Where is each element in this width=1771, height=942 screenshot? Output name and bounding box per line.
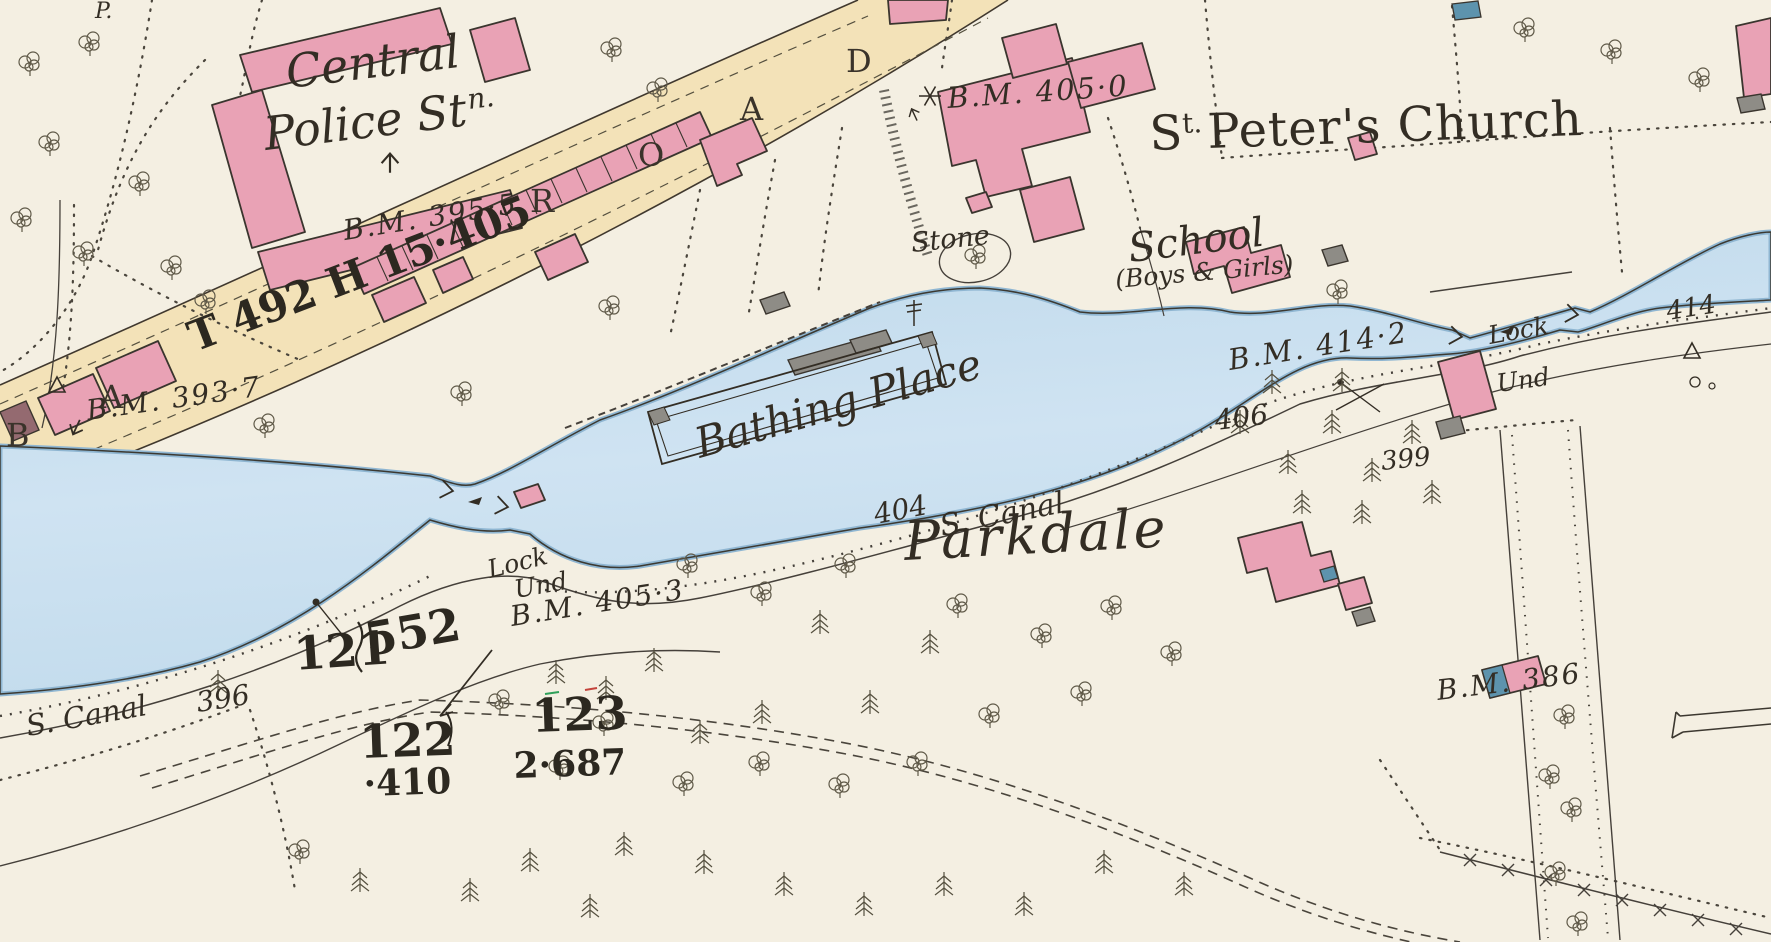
conifer-icon [775, 872, 793, 896]
label-st-peters-rest: Peter's Church [1206, 91, 1583, 160]
outbuilding [1322, 245, 1348, 266]
building-far-right [1736, 18, 1771, 98]
building-top-edge [888, 0, 948, 24]
label-canal-left: S. Canal [23, 688, 149, 743]
road-letter-a2: A [739, 90, 764, 128]
tree-icon [289, 840, 309, 864]
tree-icon [1101, 596, 1121, 620]
tree-icon [749, 752, 769, 776]
parcel-area-123: 2·687 [513, 741, 627, 787]
tree-icon [1561, 798, 1581, 822]
tree-icon [1567, 912, 1587, 936]
label-und-right: Und [1495, 362, 1552, 398]
fence-x-icon [1730, 923, 1742, 935]
triangulation-icon [1684, 343, 1700, 358]
tree-icon [1161, 642, 1181, 666]
station-star-icon [919, 87, 941, 106]
tree-icon [161, 256, 181, 280]
road-letter-o: O [638, 136, 664, 174]
conifer-icon [753, 700, 771, 724]
fence-x-icon [1654, 904, 1666, 916]
conifer-icon [1423, 480, 1441, 504]
conifer-icon [547, 660, 565, 684]
sluice-trough [1672, 708, 1771, 738]
spot-height-396: 396 [194, 678, 252, 719]
building-right-mid [1438, 351, 1496, 420]
label-parkdale: Parkdale [901, 496, 1170, 573]
building-church-wing [1020, 177, 1084, 242]
parcel-arrow [440, 650, 492, 716]
tree-icon [599, 296, 619, 320]
conifer-icon [1323, 410, 1341, 434]
building-church-porch [966, 192, 992, 213]
survey-knob [313, 599, 320, 606]
tree-icon [79, 32, 99, 56]
parcel-area-122: ·410 [363, 760, 452, 805]
slate-building [1452, 1, 1481, 20]
conifer-icon [1095, 850, 1113, 874]
conifer-icon [615, 832, 633, 856]
tree-icon [601, 38, 621, 62]
fence-line [1440, 852, 1771, 934]
ordnance-survey-map[interactable]: P. Central Police St n. B.M. 395·5 T 492… [0, 0, 1771, 942]
tree-icon [1071, 682, 1091, 706]
conifer-icon [581, 894, 599, 918]
tree-icon [73, 242, 93, 266]
conifer-icon [1333, 368, 1351, 392]
tree-icon [129, 172, 149, 196]
tree-icon [1554, 705, 1574, 729]
conifer-icon [351, 868, 369, 892]
parcel-number-123: 123 [530, 686, 628, 743]
tree-icon [1601, 40, 1621, 64]
outbuilding [1352, 607, 1375, 626]
tree-icon [835, 554, 855, 578]
tree-icon [1031, 624, 1051, 648]
outbuilding [1737, 94, 1765, 113]
tree-icon [907, 752, 927, 776]
conifer-icon [1353, 500, 1371, 524]
spot-height-406: 406 [1212, 398, 1270, 437]
label-lock-right: Lock [1485, 311, 1551, 350]
outbuilding [760, 292, 790, 314]
label-st-peters-initial: S [1148, 105, 1183, 162]
conifer-icon [1015, 892, 1033, 916]
park-paths [140, 700, 1460, 942]
tree-icon [673, 772, 693, 796]
outbuilding [1436, 416, 1465, 439]
conifer-icon [861, 690, 879, 714]
building-parkdale-wing [1338, 577, 1372, 610]
spot-height-414: 414 [1663, 290, 1718, 328]
conifer-icon [921, 630, 939, 654]
tree-icon [1539, 765, 1559, 789]
conifer-icon [461, 878, 479, 902]
fence-x-icon [1616, 894, 1628, 906]
conifer-icon [1175, 872, 1193, 896]
tree-icon [1514, 18, 1534, 42]
conifer-icon [521, 848, 539, 872]
tree-icon [19, 52, 39, 76]
tree-ic on [1327, 280, 1347, 304]
tree-icon [39, 132, 59, 156]
tree-icon [947, 594, 967, 618]
tree-icon [829, 774, 849, 798]
benchmark-405-0: B.M. 405·0 [945, 68, 1130, 115]
spot-height-399: 399 [1380, 442, 1433, 477]
tree-icon [979, 704, 999, 728]
bench-mark-icon [907, 107, 923, 123]
building-police-east-wing [470, 18, 530, 82]
tree-icon [1689, 68, 1709, 92]
label-st-peters-superscript: t. [1182, 106, 1203, 140]
label-police-station-superscript: n. [465, 80, 496, 116]
building-parkdale-house [1238, 522, 1340, 602]
road-letter-b: B [6, 416, 30, 454]
conifer-icon [1363, 458, 1381, 482]
conifer-icon [855, 892, 873, 916]
road-letter-r: R [530, 182, 555, 220]
parcel-area-121: 552 [361, 597, 465, 667]
tree-icon [254, 414, 274, 438]
conifer-icon [1293, 490, 1311, 514]
conifer-icon [1403, 420, 1421, 444]
label-p-corner: P. [94, 0, 112, 24]
bench-mark-icon [382, 154, 399, 173]
pump-icon [1709, 383, 1715, 389]
road-letter-d: D [846, 42, 872, 80]
tree-icon [451, 382, 471, 406]
tree-icon [11, 208, 31, 232]
conifer-icon [695, 850, 713, 874]
conifer-icon [935, 872, 953, 896]
map-canvas: P. Central Police St n. B.M. 395·5 T 492… [0, 0, 1771, 942]
pump-icon [1690, 377, 1700, 387]
conifer-icon [811, 610, 829, 634]
